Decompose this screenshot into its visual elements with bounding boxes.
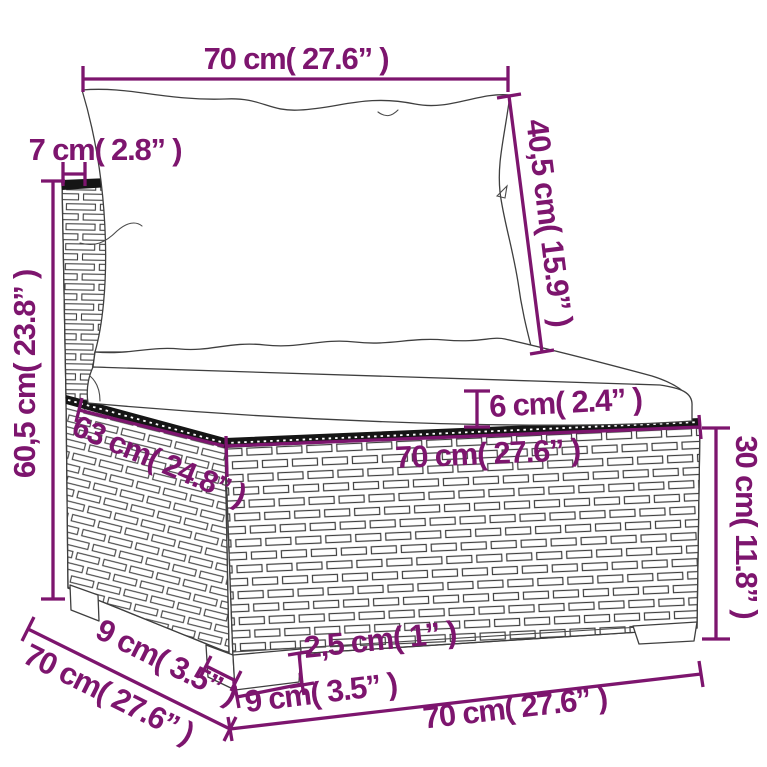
page: 70 cm( 27.6” ) 7 cm( 2.8” ) 40,5 cm( 15.… [0,0,767,767]
dim-total-height: 60,5 cm( 23.8” ) [7,181,65,599]
dim-back-cushion-width: 70 cm( 27.6” ) [83,41,508,92]
dim-base-width-label: 70 cm( 27.6” ) [421,680,609,736]
back-cushion [80,89,532,352]
dim-back-panel-thickness-label: 7 cm( 2.8” ) [29,132,182,167]
dim-base-height: 30 cm( 11.8” ) [702,428,764,639]
back-cushion-outline [82,89,532,352]
front-right-leg [633,622,697,644]
dim-back-cushion-height-label: 40,5 cm( 15.9” ) [519,117,579,328]
dim-back-cushion-width-label: 70 cm( 27.6” ) [204,41,389,76]
dim-base-height-label: 30 cm( 11.8” ) [729,435,764,618]
dim-total-height-label: 60,5 cm( 23.8” ) [7,270,42,478]
diagram-svg: 70 cm( 27.6” ) 7 cm( 2.8” ) 40,5 cm( 15.… [0,0,767,767]
rattan-base [66,395,700,658]
